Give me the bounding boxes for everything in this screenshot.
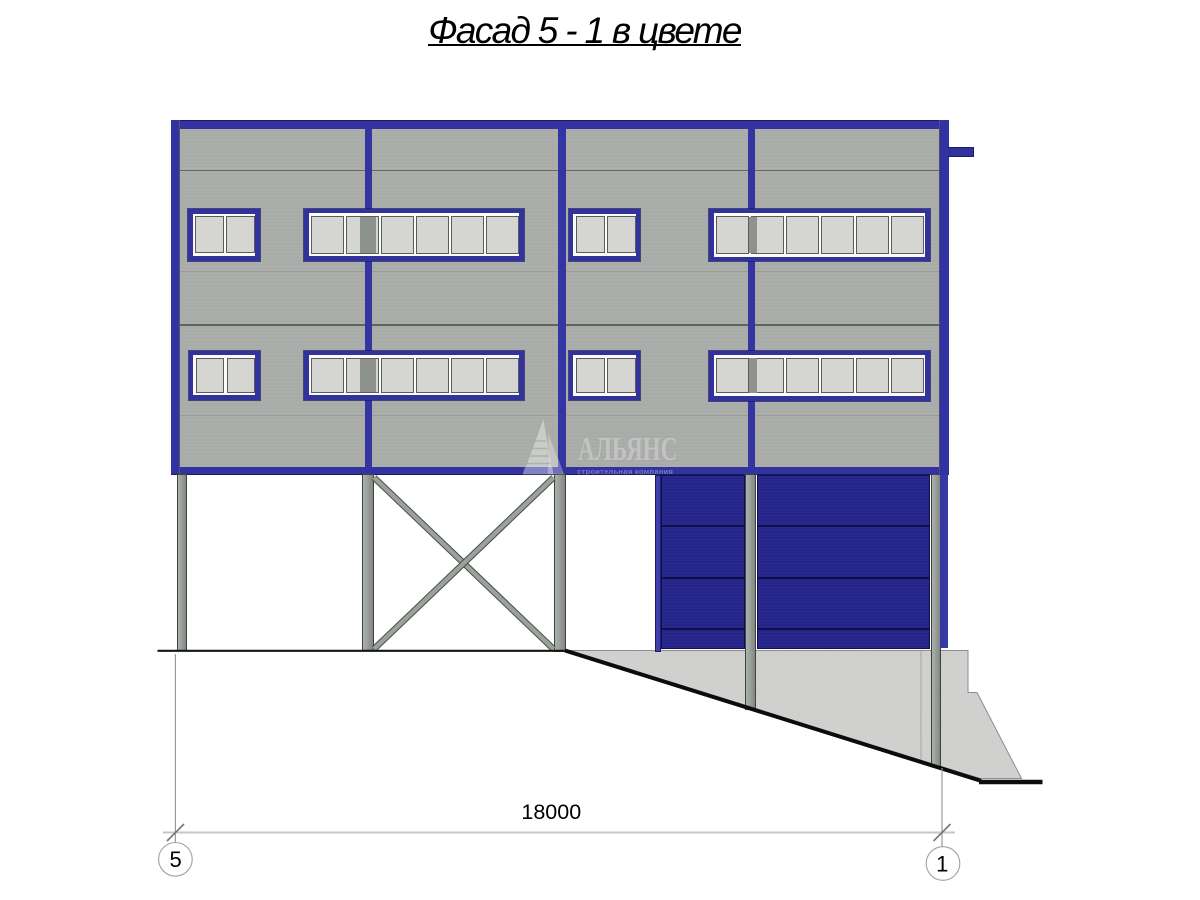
svg-text:5: 5 bbox=[169, 847, 181, 872]
svg-text:1: 1 bbox=[936, 851, 948, 876]
